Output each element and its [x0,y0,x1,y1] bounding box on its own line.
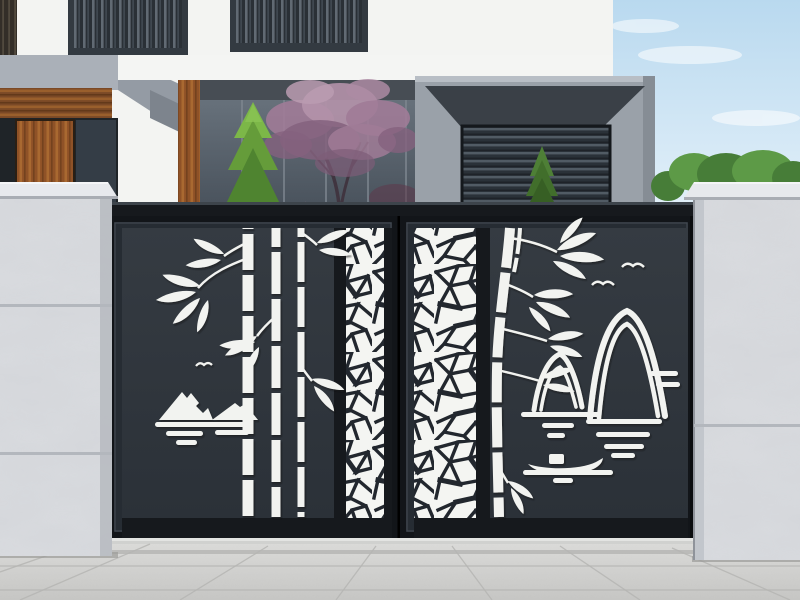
crackle-strip-right [414,228,476,518]
driveway-ground [0,544,800,600]
product-photo [0,0,800,600]
window-left [68,0,188,57]
left-pillar [0,182,118,558]
garage [415,76,655,216]
gate-right-leaf [400,215,694,538]
right-pillar [684,182,800,562]
gate [102,202,700,538]
wood-column [178,80,200,216]
window-center [230,0,368,52]
gate-left-leaf [108,216,398,538]
